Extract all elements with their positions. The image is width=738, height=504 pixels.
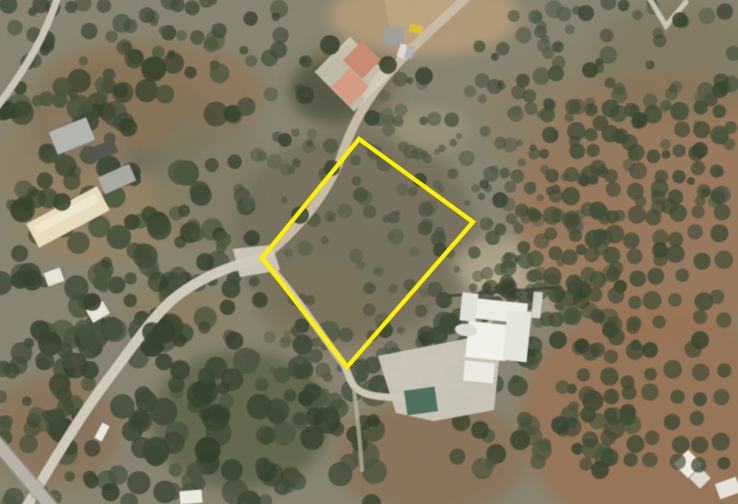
satellite-imagery xyxy=(0,0,738,504)
photo-grain-overlay xyxy=(0,0,738,504)
satellite-map-view[interactable] xyxy=(0,0,738,504)
